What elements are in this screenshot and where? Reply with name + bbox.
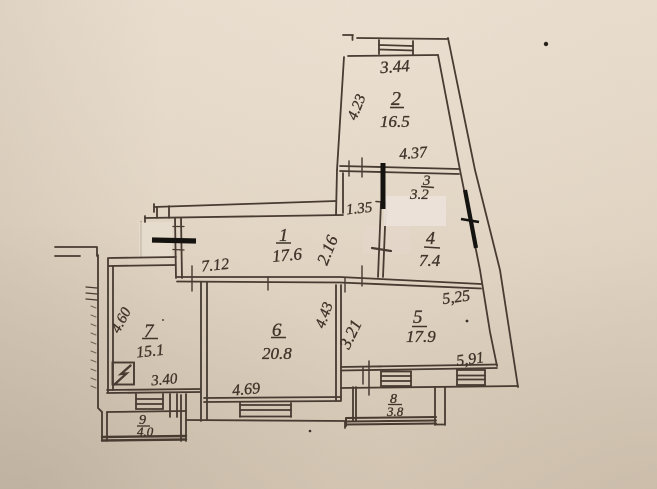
svg-text:3.8: 3.8 <box>386 404 404 419</box>
svg-text:17.9: 17.9 <box>406 327 436 346</box>
svg-text:1.35: 1.35 <box>345 200 373 219</box>
svg-text:20.8: 20.8 <box>262 344 292 363</box>
svg-text:4.69: 4.69 <box>231 380 260 399</box>
svg-text:7.4: 7.4 <box>419 251 441 270</box>
svg-text:3.2: 3.2 <box>409 187 429 203</box>
svg-text:17.6: 17.6 <box>271 244 303 266</box>
svg-text:16.5: 16.5 <box>380 112 410 131</box>
svg-text:3.44: 3.44 <box>378 56 410 77</box>
svg-text:4: 4 <box>426 228 435 248</box>
svg-text:3.40: 3.40 <box>150 371 179 389</box>
svg-text:1: 1 <box>279 225 288 245</box>
svg-text:15.1: 15.1 <box>135 342 165 362</box>
svg-text:5: 5 <box>413 307 423 328</box>
svg-text:7.12: 7.12 <box>200 256 230 276</box>
svg-text:4.0: 4.0 <box>137 424 154 439</box>
svg-text:4.37: 4.37 <box>398 144 428 163</box>
